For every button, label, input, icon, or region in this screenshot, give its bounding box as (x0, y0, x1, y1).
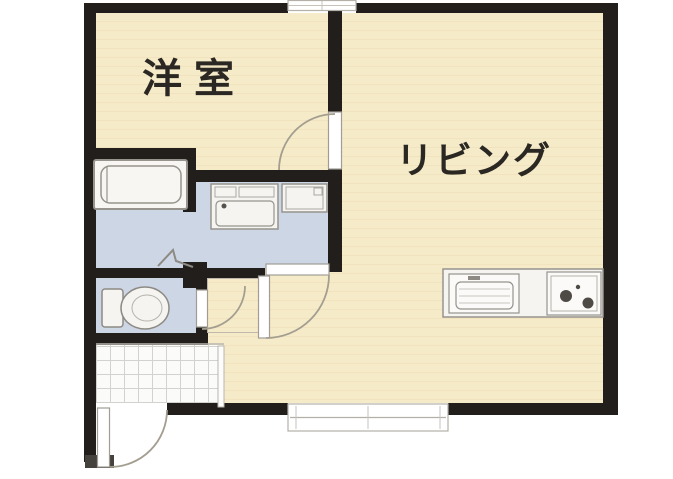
wall-bathroom-top (84, 148, 196, 160)
north-window (288, 1, 356, 11)
wall-top-left (84, 3, 288, 13)
wall-top-right (356, 3, 618, 13)
wall-partition-upper (328, 10, 342, 112)
plan-graphics (0, 0, 673, 479)
washroom-door (259, 264, 330, 338)
gas-stove (547, 272, 601, 315)
floor-plan: 洋室 リビング (0, 0, 673, 479)
wall-washroom-bottom (84, 268, 265, 278)
western-room-door (279, 112, 342, 170)
wall-toilet-bottom (84, 333, 208, 345)
kitchen-sink (449, 274, 519, 313)
south-sliding-window (288, 404, 448, 431)
folding-bath-door (158, 250, 193, 267)
hall-nook-outline (208, 279, 263, 333)
entrance-opening (108, 403, 167, 415)
kitchen-counter (443, 269, 603, 317)
entrance-door (98, 408, 168, 467)
wall-washroom-top (196, 170, 342, 182)
wall-left (84, 3, 96, 462)
wall-bottom-mid (167, 403, 288, 415)
living-room-label: リビング (396, 130, 552, 184)
toilet-door (197, 286, 246, 329)
entrance-step-edge (218, 346, 224, 407)
wall-right (603, 3, 618, 415)
western-room-label: 洋室 (142, 46, 246, 104)
wall-bottom-right (448, 403, 618, 415)
bathtub (94, 160, 187, 209)
toilet (102, 287, 169, 329)
vanity-unit (211, 184, 278, 229)
washing-machine-pan (282, 184, 327, 212)
wall-partition-lower (328, 168, 342, 272)
